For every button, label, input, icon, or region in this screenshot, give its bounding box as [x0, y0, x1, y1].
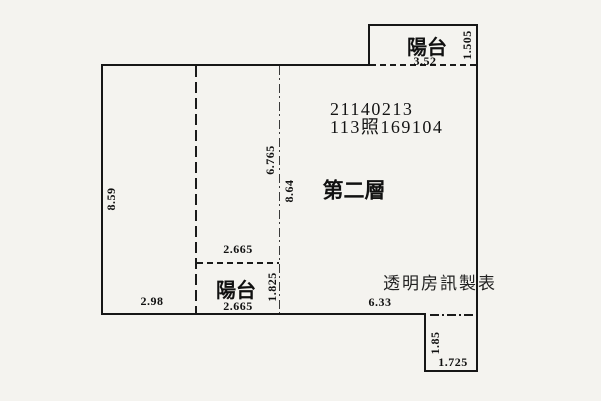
notch-height-dim: 1.85 — [429, 332, 441, 355]
floor-label: 第二層 — [323, 181, 386, 202]
partition-dashdot-line — [279, 66, 280, 313]
floor-plan: 陽台 3.52 1.505 21140213 113照169104 第二層 8.… — [0, 0, 601, 401]
balcony-bottom-label: 陽台 — [216, 281, 256, 301]
wall-left-edge — [101, 64, 103, 315]
notch-width-dim: 1.725 — [438, 356, 468, 368]
balcony-bottom-width-bottom-dim: 2.665 — [223, 300, 253, 312]
balcony-top-width-dim: 3.52 — [414, 55, 437, 67]
center-height-left-dim: 6.765 — [264, 145, 276, 175]
permit-number: 113照169104 — [330, 118, 443, 136]
watermark: 透明房訊製表 — [383, 275, 497, 292]
bottom-right-width-dim: 6.33 — [369, 296, 392, 308]
partition-dashed-line — [195, 66, 197, 313]
left-height-dim: 8.59 — [105, 188, 117, 211]
wall-notch-left — [424, 313, 426, 372]
balcony-top-depth-dim: 1.505 — [461, 30, 473, 60]
case-number: 21140213 — [330, 100, 413, 118]
wall-notch-bottom — [424, 370, 478, 372]
notch-top-dashdot-line — [430, 314, 476, 316]
wall-bottom-left — [101, 313, 426, 315]
center-height-right-dim: 8.64 — [283, 180, 295, 203]
balcony-bottom-depth-dim: 1.825 — [266, 272, 278, 302]
balcony-bottom-dashed-line — [197, 262, 279, 264]
balcony-bottom-width-top-dim: 2.665 — [223, 243, 253, 255]
wall-balcony-top — [368, 24, 478, 26]
bottom-left-width-dim: 2.98 — [141, 295, 164, 307]
wall-balcony-left — [368, 24, 370, 66]
wall-right-edge — [476, 24, 478, 372]
wall-top-left — [101, 64, 370, 66]
